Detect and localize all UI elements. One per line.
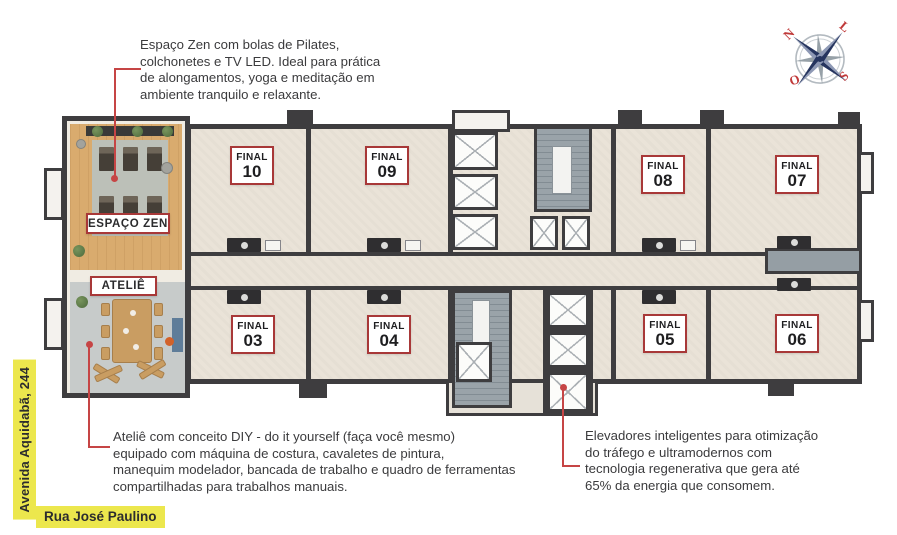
compass-north-label: N (780, 25, 798, 43)
leader-line-zen (114, 68, 116, 178)
kitchen-counter (777, 236, 811, 249)
note-line: compartilhadas para trabalhos manuais. (113, 479, 515, 496)
cooktop-icon (241, 294, 248, 301)
shaft-top (452, 110, 510, 132)
street-label-text: Rua José Paulino (44, 509, 157, 524)
unit-number: 06 (777, 331, 817, 349)
compass-west-label: O (787, 71, 802, 89)
note-line: Elevadores inteligentes para otimização (585, 428, 818, 445)
wall-tab (838, 112, 860, 126)
chair (101, 325, 110, 338)
compass-south-label: S (836, 68, 852, 84)
floorplan-marketing-page: { "annotations": { "zen": { "lines": [ "… (0, 0, 897, 535)
plate (130, 310, 136, 316)
note-line: equipado com máquina de costura, cavalet… (113, 446, 515, 463)
pilates-mat (123, 147, 138, 171)
unit-number: 10 (232, 163, 272, 181)
compass-east-label: L (837, 18, 854, 35)
note-elevators: Elevadores inteligentes para otimização … (585, 428, 818, 494)
elevator-shaft (530, 216, 558, 250)
unit-label-final-05: FINAL 05 (643, 314, 687, 353)
wall-tab (618, 110, 642, 128)
plate (133, 344, 139, 350)
elevator-shaft (456, 342, 492, 382)
cooktop-icon (791, 281, 798, 288)
unit-wall (611, 288, 616, 380)
plant-icon (92, 126, 103, 137)
street-label-text: Avenida Aquidabã, 244 (17, 367, 32, 513)
pilates-mat (99, 147, 114, 171)
kitchen-counter (642, 290, 676, 304)
unit-number: 08 (643, 172, 683, 190)
plant-icon (73, 245, 85, 257)
unit-wall (706, 288, 711, 380)
cooktop-icon (241, 242, 248, 249)
cooktop-icon (656, 294, 663, 301)
work-table (112, 299, 152, 363)
wall-tab (768, 380, 794, 396)
elevator-shaft-smart (547, 372, 589, 412)
unit-number: 07 (777, 172, 817, 190)
leader-line-elevators (562, 465, 580, 467)
elevator-shaft (452, 214, 498, 250)
unit-wall (306, 288, 311, 380)
chair (101, 347, 110, 360)
street-label-avenida-aquidaba: Avenida Aquidabã, 244 (13, 360, 36, 520)
unit-label-final-07: FINAL 07 (775, 155, 819, 194)
note-line: Ateliê com conceito DIY - do it yourself… (113, 429, 515, 446)
note-line: Espaço Zen com bolas de Pilates, (140, 37, 380, 54)
pilates-ball (161, 162, 173, 174)
atelie-label-text: ATELIÊ (102, 280, 146, 292)
wall-tab (700, 110, 724, 128)
balcony-left-top (44, 168, 64, 220)
unit-label-final-09: FINAL 09 (365, 146, 409, 185)
kitchen-counter (642, 238, 676, 252)
corridor-wall-bottom (191, 286, 861, 290)
leader-dot-zen (111, 175, 118, 182)
unit-label-final-08: FINAL 08 (641, 155, 685, 194)
kitchen-cabinet (265, 240, 281, 251)
unit-label-final-03: FINAL 03 (231, 315, 275, 354)
wall-tab (299, 380, 327, 398)
kitchen-counter (227, 290, 261, 304)
leader-line-atelie (88, 446, 110, 448)
kitchen-counter (227, 238, 261, 252)
espaco-zen-label-text: ESPAÇO ZEN (88, 218, 168, 230)
tool-shelf (172, 318, 183, 352)
kitchen-cabinet (405, 240, 421, 251)
note-line: manequim modelador, bancada de trabalho … (113, 462, 515, 479)
note-line: tecnologia regenerativa que gera até (585, 461, 818, 478)
kitchen-cabinet (680, 240, 696, 251)
pilates-ball (76, 139, 86, 149)
plate (123, 328, 129, 334)
leader-line-zen (115, 68, 141, 70)
painting-easel (136, 356, 166, 382)
cooktop-icon (791, 239, 798, 246)
unit-number: 09 (367, 163, 407, 181)
elevator-shaft (452, 174, 498, 210)
plant-icon (132, 126, 143, 137)
compass-rose: N L S O (777, 14, 863, 100)
note-line: ambiente tranquilo e relaxante. (140, 87, 380, 104)
balcony-right-top (858, 152, 874, 194)
corridor-wall-top (191, 252, 861, 256)
wall-tab (287, 110, 313, 128)
chair (101, 303, 110, 316)
corridor-gray-section (765, 248, 862, 274)
kitchen-counter (777, 278, 811, 291)
unit-number: 05 (645, 331, 685, 349)
kitchen-counter (367, 238, 401, 252)
plant-icon (76, 296, 88, 308)
unit-label-final-10: FINAL 10 (230, 146, 274, 185)
note-atelie: Ateliê com conceito DIY - do it yourself… (113, 429, 515, 495)
balcony-right-bottom (858, 300, 874, 342)
unit-number: 04 (369, 332, 409, 350)
plant-icon (162, 126, 173, 137)
note-line: de alongamentos, yoga e meditação em (140, 70, 380, 87)
unit-wall (706, 129, 711, 256)
stair-landing (552, 146, 572, 194)
leader-line-atelie (88, 346, 90, 448)
stool (165, 337, 174, 346)
unit-number: 03 (233, 332, 273, 350)
cooktop-icon (381, 242, 388, 249)
cooktop-icon (381, 294, 388, 301)
painting-easel (92, 360, 122, 386)
atelie-label: ATELIÊ (90, 276, 157, 296)
note-line: 65% da energia que consomem. (585, 478, 818, 495)
leader-line-elevators (562, 389, 564, 467)
note-line: do tráfego e ultramodernos com (585, 445, 818, 462)
street-label-rua-jose-paulino: Rua José Paulino (36, 506, 165, 528)
note-line: colchonetes e TV LED. Ideal para prática (140, 54, 380, 71)
elevator-shaft (452, 132, 498, 170)
unit-label-final-06: FINAL 06 (775, 314, 819, 353)
chair (154, 325, 163, 338)
kitchen-counter (367, 290, 401, 304)
balcony-left-bottom (44, 298, 64, 350)
unit-wall (611, 129, 616, 256)
chair (154, 303, 163, 316)
elevator-shaft (547, 292, 589, 328)
cooktop-icon (656, 242, 663, 249)
pilates-mat (147, 147, 162, 171)
espaco-zen-label: ESPAÇO ZEN (86, 213, 170, 234)
note-espaco-zen: Espaço Zen com bolas de Pilates, colchon… (140, 37, 380, 103)
elevator-shaft (562, 216, 590, 250)
unit-wall (306, 129, 311, 256)
elevator-shaft (547, 332, 589, 368)
unit-label-final-04: FINAL 04 (367, 315, 411, 354)
